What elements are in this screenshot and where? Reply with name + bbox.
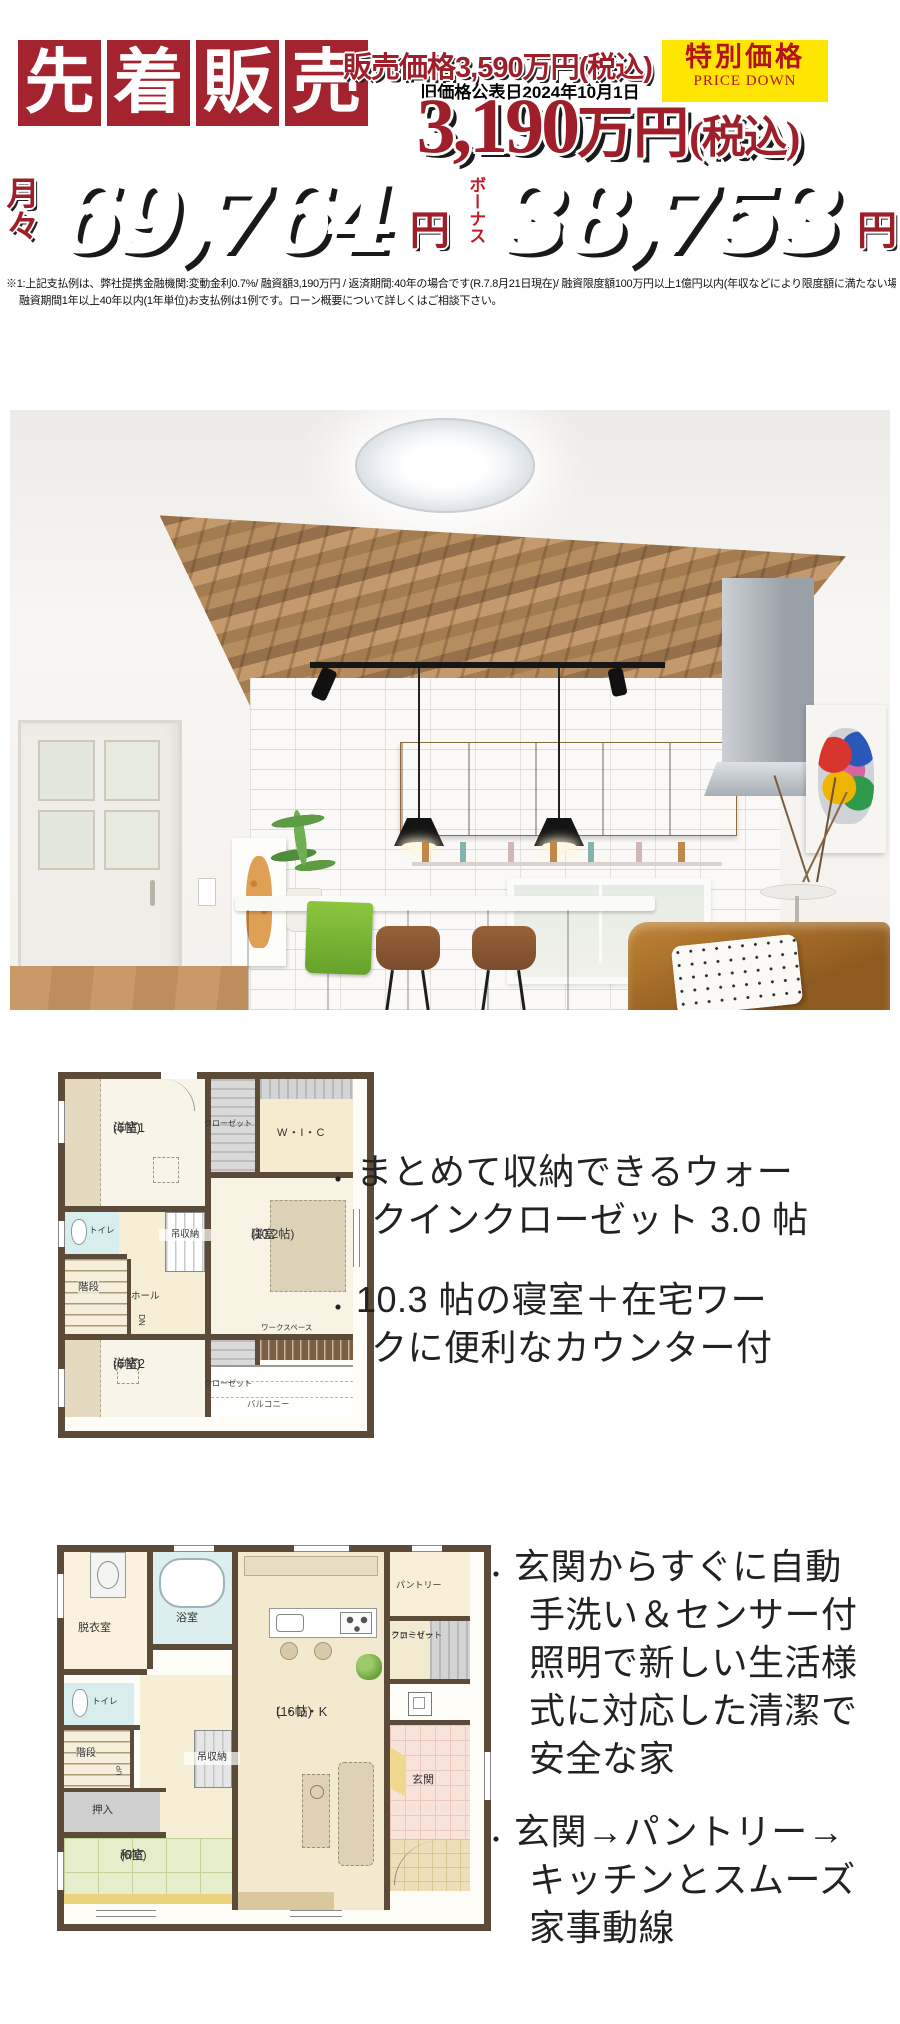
- bar-stool: [376, 926, 440, 1010]
- island-countertop: [235, 896, 655, 911]
- room-label-toilet-1f: トイレ: [92, 1696, 118, 1707]
- shelf-decor-bottles: [422, 842, 712, 862]
- feature-line: キッチンとスムーズ: [514, 1856, 856, 1904]
- door-glass-panes: [38, 740, 160, 870]
- feature-line: クインクローゼット 3.0 帖: [356, 1196, 809, 1244]
- staircase-1f: [64, 1730, 134, 1788]
- toilet-icon: [71, 1219, 87, 1245]
- room-label-kaidan: 階段: [78, 1281, 99, 1294]
- stool-marker: [280, 1642, 298, 1660]
- label-line: (6帖): [113, 1121, 141, 1137]
- green-towel: [305, 901, 373, 975]
- disclaimer-line: ※1:上記支払例は、弊社提携金融機関:変動金利0.7%/ 融資額3,190万円 …: [6, 276, 896, 293]
- feature-item: ・ 玄関→パントリー→ キッチンとスムーズ 家事動線: [484, 1808, 896, 1952]
- payment-row: 月々 69,764 円 ボーナス 38,753 円: [4, 176, 897, 258]
- plan-wall: [153, 1644, 232, 1650]
- palm-plant-leaves: [249, 782, 353, 903]
- entrance-porch: [390, 1839, 470, 1891]
- branch: [802, 792, 848, 883]
- window-opening: [58, 1369, 65, 1407]
- interior-photo: [10, 410, 890, 1010]
- feature-line: 式に対応した清潔で: [514, 1687, 858, 1735]
- monthly-yen: 円: [410, 198, 450, 256]
- room-label-tsurishuno: 吊収納: [159, 1229, 211, 1241]
- open-shelf: [412, 862, 722, 866]
- sale-type-banner: 先 着 販 売: [18, 40, 368, 126]
- window-opening: [58, 1101, 65, 1143]
- pendant-cord: [418, 668, 420, 820]
- feature-line: 玄関→パントリー→: [514, 1808, 856, 1856]
- stove-burners: [340, 1612, 372, 1634]
- bar-stool: [472, 926, 536, 1010]
- room-label-tsurishuno-1f: 吊収納: [184, 1752, 240, 1765]
- room-label-yokushitsu: 浴室: [176, 1612, 198, 1626]
- sale-char-box: 販: [196, 40, 279, 126]
- sink-bowl: [97, 1561, 119, 1589]
- wood-deck: [238, 1892, 334, 1910]
- feature-line: 10.3 帖の寝室＋在宅ワー: [356, 1276, 773, 1324]
- wic-shelf-band: [260, 1079, 353, 1099]
- room-label-balcony: バルコニー: [247, 1399, 289, 1410]
- bullet: ・: [326, 1148, 356, 1244]
- desk-dashed: [153, 1157, 179, 1183]
- kitchen-sink: [276, 1614, 304, 1632]
- room-yokushitsu: [153, 1552, 232, 1644]
- feature-line: 手洗い＆センサー付: [514, 1591, 858, 1639]
- glass-pane: [104, 810, 161, 871]
- furniture-band: [65, 1079, 101, 1206]
- new-price-amount: 3,190: [417, 82, 578, 169]
- door-handle: [150, 880, 155, 906]
- pattern-pillow: [671, 934, 804, 1010]
- sink-basin: [413, 1697, 425, 1709]
- feature-line: クに便利なカウンター付: [356, 1324, 773, 1372]
- window-opening: [96, 1910, 156, 1917]
- feature-text: 10.3 帖の寝室＋在宅ワー クに便利なカウンター付: [356, 1276, 773, 1372]
- range-hood-duct: [722, 578, 814, 766]
- kitchen-island: [269, 1608, 377, 1638]
- stool-leg: [421, 970, 430, 1010]
- room-label-toilet: トイレ: [89, 1225, 115, 1236]
- sale-char-box: 先: [18, 40, 101, 126]
- bonus-label: ボーナス: [467, 176, 484, 254]
- plan-wall: [205, 1178, 211, 1340]
- bonus-yen: 円: [857, 198, 897, 256]
- fe​ature-text: 玄関→パントリー→ キッチンとスムーズ 家事動線: [514, 1808, 856, 1952]
- track-light-bar: [310, 662, 665, 668]
- room-label-workspace: ワークスペース: [261, 1323, 312, 1332]
- feature-text: まとめて収納できるウォー クインクローゼット 3.0 帖: [356, 1148, 809, 1244]
- feature-line: 安全な家: [514, 1735, 858, 1783]
- furniture-band: [65, 1340, 101, 1417]
- features-2f: ・ まとめて収納できるウォー クインクローゼット 3.0 帖 ・ 10.3 帖の…: [326, 1148, 896, 1404]
- window-opening: [290, 1910, 342, 1917]
- room-label-kaidan-1f: 階段: [76, 1748, 96, 1761]
- hanging-storage: [165, 1212, 205, 1272]
- label-line: (16帖): [276, 1704, 312, 1720]
- room-label-closet-top: クローゼット: [195, 1119, 261, 1129]
- genkan-step: [390, 1747, 406, 1797]
- wall-opening: [161, 1072, 197, 1079]
- auto-handwash-sink: [408, 1692, 432, 1716]
- room-datsuishitsu: [64, 1552, 147, 1669]
- plant-marker: [356, 1654, 382, 1680]
- disclaimer-line: 融資期間1年以上40年以内(1年単位)お支払例は1例です。ローン概要について詳し…: [6, 293, 896, 310]
- glass-pane: [38, 740, 95, 801]
- monthly-label: 月々: [4, 176, 37, 254]
- window-opening: [57, 1852, 64, 1890]
- room-label-wic: W・I・C: [277, 1127, 325, 1141]
- stool-leg: [517, 970, 526, 1010]
- label-line: クローゼット: [391, 1630, 442, 1641]
- table-plate: [310, 1785, 324, 1799]
- feature-line: 玄関からすぐに自動: [514, 1543, 858, 1591]
- kitchen-back-counter: [244, 1556, 378, 1576]
- label-line: (6帖): [120, 1848, 147, 1863]
- light-switch-plate: [198, 878, 216, 906]
- room-washitsu: [64, 1838, 232, 1904]
- stool-leg: [481, 970, 490, 1010]
- bonus-amount: 38,753: [502, 179, 838, 258]
- window-opening: [58, 1221, 65, 1247]
- feature-item: ・ 10.3 帖の寝室＋在宅ワー クに便利なカウンター付: [326, 1276, 896, 1372]
- glass-pane: [38, 810, 95, 871]
- dining-table-dashed: [302, 1774, 330, 1848]
- plan-wall: [390, 1679, 470, 1684]
- flyer-page: 先 着 販 売 販売価格3,590万円(税込) 旧価格公表日2024年10月1日…: [0, 0, 900, 2024]
- toilet-icon: [72, 1689, 88, 1717]
- branch: [773, 775, 810, 882]
- wood-floor: [10, 966, 248, 1010]
- special-price-label: 特別価格: [662, 43, 828, 73]
- window-opening: [294, 1545, 349, 1552]
- feature-item: ・ まとめて収納できるウォー クインクローゼット 3.0 帖: [326, 1148, 896, 1244]
- monthly-amount: 69,764: [54, 179, 390, 258]
- vanity-unit: [90, 1552, 126, 1598]
- room-label-genkan: 玄関: [412, 1774, 434, 1788]
- feature-text: 玄関からすぐに自動 手洗い＆センサー付 照明で新しい生活様 式に対応した清潔で …: [514, 1543, 858, 1782]
- feature-line: まとめて収納できるウォー: [356, 1148, 809, 1196]
- stool-seat: [376, 926, 440, 970]
- stool-leg: [385, 970, 394, 1010]
- stool-marker: [314, 1642, 332, 1660]
- ceiling-light: [355, 418, 535, 513]
- room-ldk: [238, 1552, 384, 1910]
- room-label-pantry: パントリー: [396, 1580, 441, 1591]
- bathtub: [159, 1558, 225, 1608]
- new-price-unit: 万円: [577, 103, 689, 165]
- window-opening: [57, 1574, 64, 1618]
- vase-branches: [766, 770, 856, 890]
- feature-item: ・ 玄関からすぐに自動 手洗い＆センサー付 照明で新しい生活様 式に対応した清潔…: [484, 1543, 896, 1782]
- door-arc: [394, 1841, 438, 1885]
- bullet: ・: [484, 1808, 514, 1952]
- sale-char-box: 着: [107, 40, 190, 126]
- room-label-closet-bottom: クローゼット: [195, 1379, 261, 1389]
- bullet: ・: [326, 1276, 356, 1372]
- staircase: [65, 1259, 131, 1334]
- window-opening: [174, 1545, 214, 1552]
- room-yoshitsu2: [65, 1340, 205, 1417]
- pendant-cord: [558, 668, 560, 820]
- sofa-dashed: [338, 1762, 374, 1866]
- features-1f: ・ 玄関からすぐに自動 手洗い＆センサー付 照明で新しい生活様 式に対応した清潔…: [484, 1543, 896, 1984]
- label-line: (10.2帖): [251, 1227, 294, 1242]
- loan-disclaimer: ※1:上記支払例は、弊社提携金融機関:変動金利0.7%/ 融資額3,190万円 …: [6, 276, 896, 309]
- window-opening: [412, 1545, 442, 1552]
- room-label-datsuishitsu: 脱衣室: [78, 1622, 111, 1636]
- feature-line: 家事動線: [514, 1904, 856, 1952]
- room-label-up: UP: [116, 1766, 125, 1776]
- label-line: (6帖): [113, 1357, 141, 1373]
- tatami-edge-strip: [64, 1894, 232, 1904]
- new-price-tax: (税込): [689, 113, 798, 162]
- bullet: ・: [484, 1543, 514, 1782]
- glass-pane: [104, 740, 161, 801]
- room-label-dn: DN: [136, 1314, 146, 1326]
- feature-line: 照明で新しい生活様: [514, 1639, 858, 1687]
- room-label-oshiire: 押入: [92, 1804, 113, 1817]
- floor-plan-1f: 脱衣室 浴室 トイレ 階段 UP 押入 和室 (6帖) 吊収納 L・D・K (1…: [57, 1545, 491, 1931]
- plan-wall: [64, 1669, 147, 1675]
- room-label-hall: ホール: [131, 1291, 160, 1303]
- stool-seat: [472, 926, 536, 970]
